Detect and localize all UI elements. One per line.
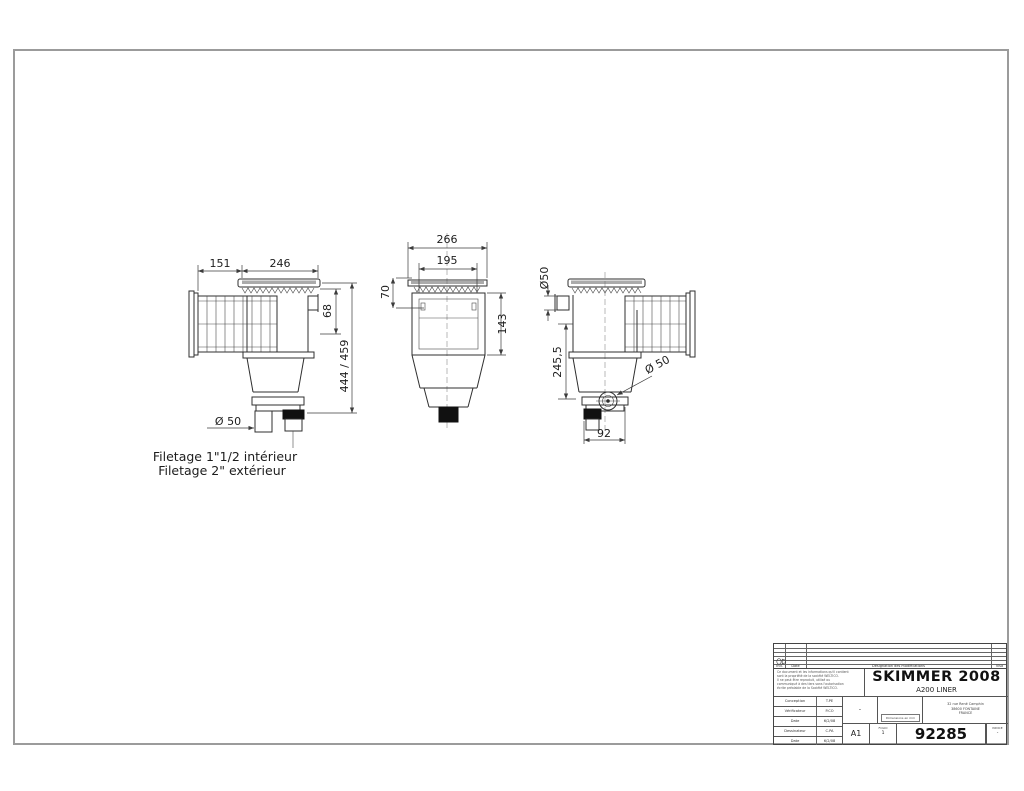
dim-143: 143	[496, 314, 509, 335]
field-label: Dessinateur	[774, 727, 817, 736]
dim-92: 92	[597, 427, 611, 440]
revision-visa-label: Visa	[991, 664, 1008, 668]
thread-note-line1: Filetage 1"1/2 intérieur	[153, 449, 298, 464]
title-block: Ind. Date Désignation des modifications …	[773, 643, 1007, 745]
field-label: Date	[774, 737, 817, 745]
field-value: P.CO	[816, 707, 843, 716]
folio-value: 1	[870, 731, 896, 737]
field-label: Vérificateur	[774, 707, 817, 716]
dim-70: 70	[379, 285, 392, 299]
view-side-left: 151 246 68 444 / 459 Ø 50 Filetage 1"1/2…	[153, 257, 357, 478]
revision-designation-label: Désignation des modifications	[806, 664, 991, 668]
dim-444-459: 444 / 459	[338, 340, 351, 393]
dim-68: 68	[321, 304, 334, 318]
legal-notice: Ce document et les informations qu'il co…	[774, 669, 865, 697]
revision-table: Ind. Date Désignation des modifications …	[773, 643, 1007, 669]
field-row: Conception T.PE	[774, 697, 843, 707]
dim-246: 246	[270, 257, 291, 270]
indice-cell: INDICE -	[986, 724, 1008, 745]
field-row: Dessinateur C.PA	[774, 727, 843, 737]
dim-dia50-bottom: Ø 50	[215, 415, 241, 428]
dim-245-5: 245,5	[551, 346, 564, 378]
revision-date-label: Date	[785, 664, 806, 668]
field-label: Conception	[774, 697, 817, 706]
dim-dia50-side-port: Ø 50	[643, 353, 672, 377]
drawing-title-cell: SKIMMER 2008 A200 LINER	[865, 669, 1008, 697]
dim-dia50-top-stub: Ø50	[538, 267, 551, 290]
field-value: 6/2/08	[816, 717, 843, 726]
view-side-right: Ø50 245,5 Ø 50 92	[538, 267, 695, 444]
title-block-main: Ce document et les informations qu'il co…	[773, 669, 1007, 745]
indice-value: -	[987, 731, 1008, 737]
scale-cell: -	[843, 697, 878, 724]
view-front: 266 195 70 143	[379, 233, 509, 430]
units-cell: Dimensions en mm	[878, 697, 923, 724]
dim-151: 151	[210, 257, 231, 270]
revision-ind-label: Ind.	[774, 664, 785, 668]
sheet-format: A1	[843, 724, 870, 745]
drawing-subtitle: A200 LINER	[865, 686, 1008, 694]
field-value: 6/2/08	[816, 737, 843, 745]
field-row: Vérificateur P.CO	[774, 707, 843, 717]
drawing-title: SKIMMER 2008	[865, 669, 1008, 686]
field-value: C.PA	[816, 727, 843, 736]
folio-cell: FOLIO 1	[870, 724, 897, 745]
dim-266: 266	[437, 233, 458, 246]
dim-195: 195	[437, 254, 458, 267]
field-value: T.PE	[816, 697, 843, 706]
field-label: Date	[774, 717, 817, 726]
drawing-number: 92285	[897, 724, 986, 745]
company-address: 32 rue René Camphin 38600 FONTAINE FRANC…	[923, 697, 1008, 724]
field-row: Date 6/2/08	[774, 737, 843, 745]
thread-note-line2: Filetage 2" extérieur	[158, 463, 286, 478]
units-note: Dimensions en mm	[881, 714, 920, 722]
field-row: Date 6/2/08	[774, 717, 843, 727]
